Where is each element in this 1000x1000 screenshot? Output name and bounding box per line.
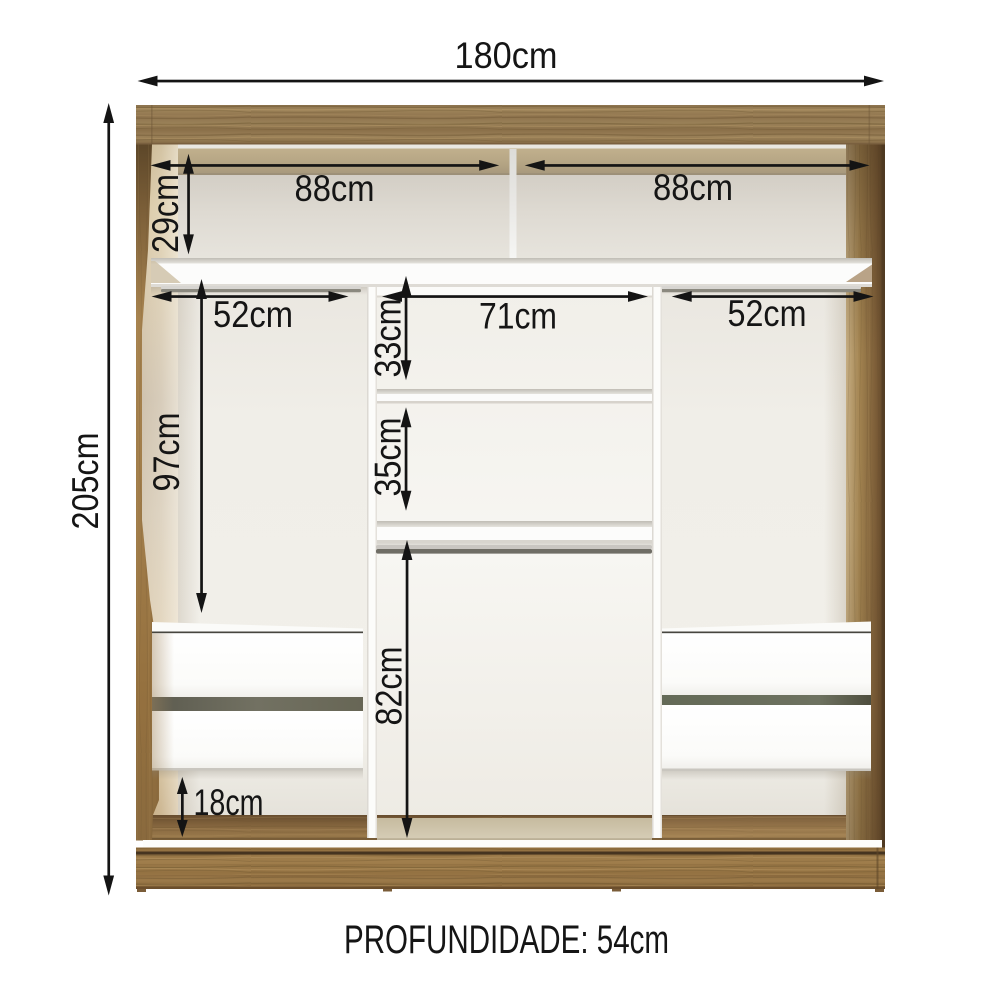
svg-text:33cm: 33cm [368, 299, 409, 378]
svg-text:71cm: 71cm [479, 296, 557, 337]
svg-text:PROFUNDIDADE: 54cm: PROFUNDIDADE: 54cm [344, 918, 669, 962]
svg-text:88cm: 88cm [295, 168, 375, 209]
svg-text:18cm: 18cm [194, 782, 264, 823]
svg-text:29cm: 29cm [145, 174, 186, 253]
svg-text:82cm: 82cm [369, 647, 410, 726]
svg-text:35cm: 35cm [368, 418, 409, 497]
svg-text:180cm: 180cm [455, 35, 558, 76]
svg-text:52cm: 52cm [213, 294, 293, 335]
svg-text:97cm: 97cm [146, 413, 187, 492]
svg-text:205cm: 205cm [65, 433, 106, 530]
svg-text:52cm: 52cm [728, 293, 807, 334]
svg-text:88cm: 88cm [653, 167, 733, 208]
